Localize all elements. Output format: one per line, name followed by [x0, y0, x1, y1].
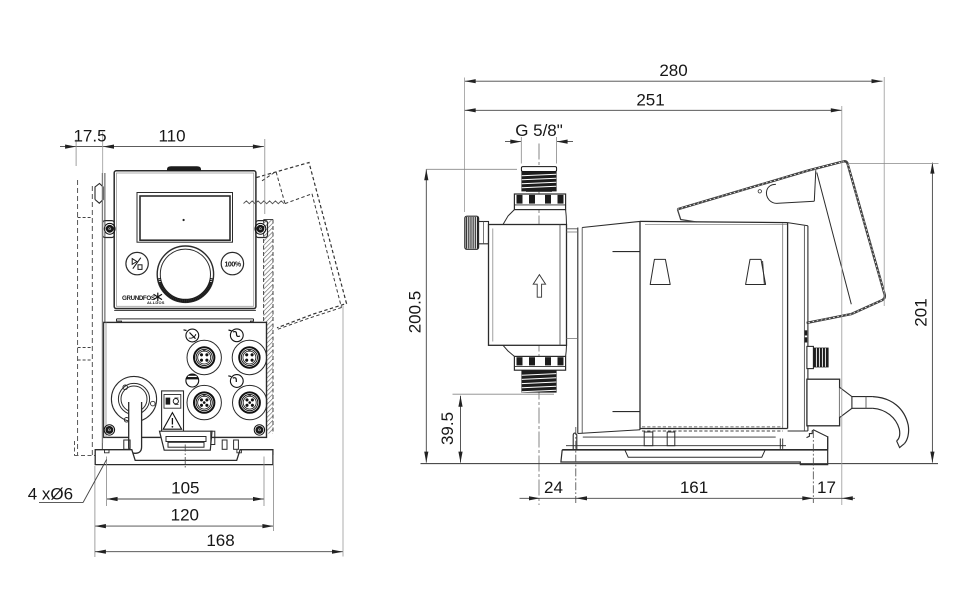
- svg-text:201: 201: [911, 298, 930, 326]
- svg-text:120: 120: [171, 506, 199, 525]
- svg-text:ALLDOS: ALLDOS: [147, 300, 165, 305]
- svg-text:G 5/8": G 5/8": [515, 121, 563, 140]
- svg-text:280: 280: [659, 61, 687, 80]
- svg-text:161: 161: [680, 478, 708, 497]
- svg-text:17: 17: [817, 478, 836, 497]
- svg-text:200.5: 200.5: [405, 291, 424, 334]
- svg-text:39.5: 39.5: [438, 412, 457, 445]
- svg-text:100%: 100%: [224, 262, 241, 269]
- svg-text:168: 168: [206, 531, 234, 550]
- svg-text:24: 24: [544, 478, 563, 497]
- svg-text:251: 251: [636, 90, 664, 109]
- svg-text:17.5: 17.5: [73, 127, 106, 146]
- svg-text:4 xØ6: 4 xØ6: [28, 484, 73, 503]
- svg-text:110: 110: [158, 127, 185, 146]
- svg-text:105: 105: [171, 479, 199, 498]
